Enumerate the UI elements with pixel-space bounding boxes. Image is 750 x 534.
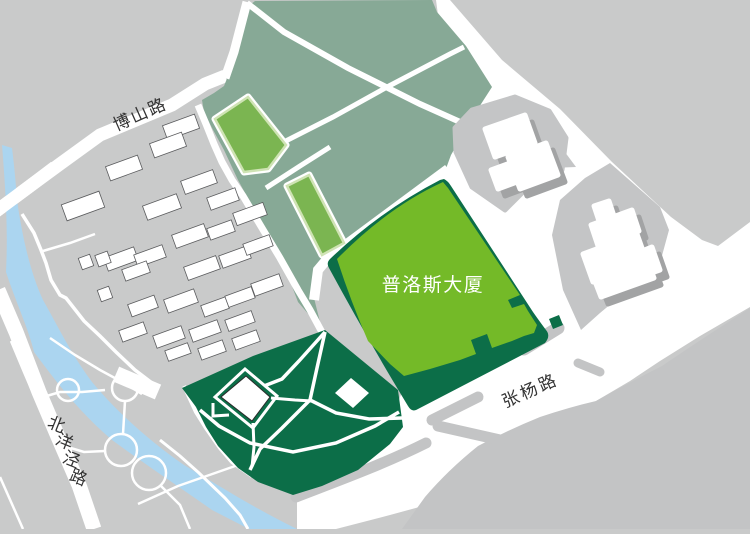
svg-text:普洛斯大厦: 普洛斯大厦	[382, 274, 485, 296]
